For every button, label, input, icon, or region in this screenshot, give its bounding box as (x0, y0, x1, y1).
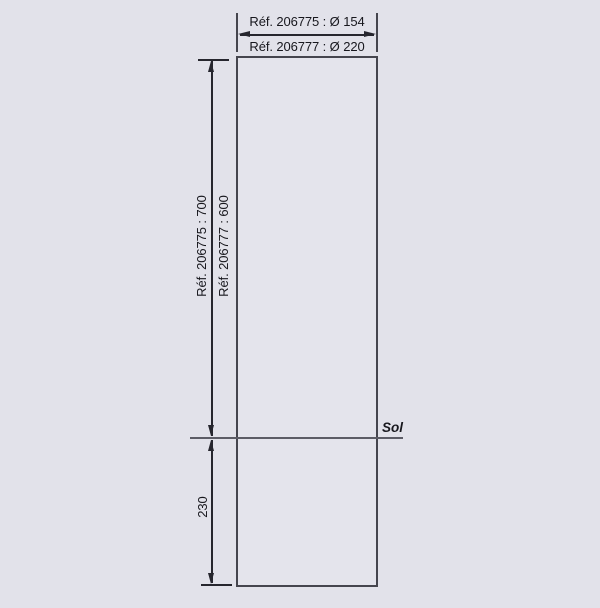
diameter-label-ref-206775: Réf. 206775 : Ø 154 (227, 14, 387, 29)
arrowhead-right-icon (364, 31, 376, 37)
diameter-extension-line-right (376, 13, 378, 52)
ground-label: Sol (382, 420, 403, 435)
arrowhead-left-icon (238, 31, 250, 37)
diameter-dimension-line (240, 34, 374, 36)
technical-drawing: Réf. 206775 : Ø 154 Réf. 206777 : Ø 220 … (0, 0, 600, 608)
post-body-outline (236, 56, 378, 587)
height-label-ref-206775: Réf. 206775 : 700 (194, 146, 210, 346)
below-ground-depth-label: 230 (195, 427, 211, 587)
diameter-label-ref-206777: Réf. 206777 : Ø 220 (227, 39, 387, 54)
height-label-ref-206777: Réf. 206777 : 600 (216, 146, 232, 346)
below-ground-dimension-line (211, 440, 213, 583)
arrowhead-up-icon (208, 61, 214, 72)
height-dimension-line (211, 61, 213, 436)
ground-line (190, 437, 403, 439)
